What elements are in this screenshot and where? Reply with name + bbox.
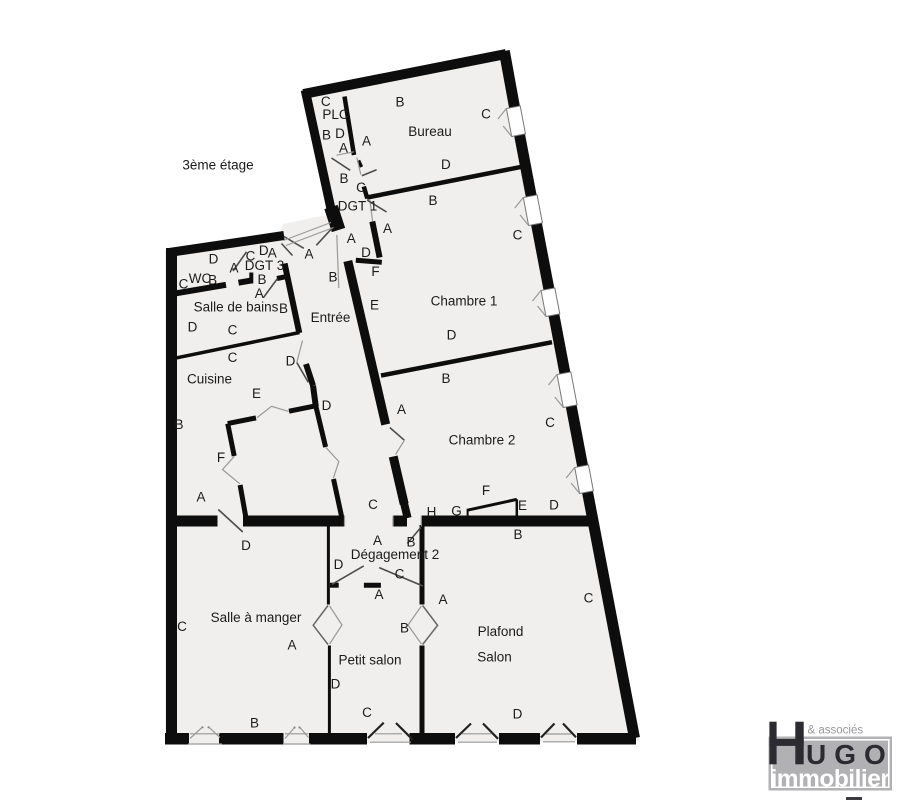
svg-text:C: C [179, 277, 189, 292]
svg-text:F: F [482, 483, 490, 498]
svg-text:Salon: Salon [477, 650, 512, 665]
svg-text:D: D [322, 398, 332, 413]
svg-text:B: B [513, 527, 522, 542]
svg-text:D: D [335, 126, 345, 141]
svg-text:D: D [188, 320, 198, 335]
svg-text:A: A [438, 592, 447, 607]
svg-text:C: C [228, 350, 238, 365]
svg-text:DGT 3: DGT 3 [245, 258, 285, 273]
svg-text:C: C [368, 497, 378, 512]
svg-text:G: G [451, 504, 462, 519]
svg-text:D: D [286, 354, 296, 369]
svg-text:B: B [174, 417, 183, 432]
svg-text:A: A [397, 402, 406, 417]
svg-text:immobilier: immobilier [771, 766, 891, 793]
svg-text:B: B [322, 128, 331, 143]
svg-text:A: A [373, 533, 382, 548]
svg-text:C: C [356, 180, 366, 195]
svg-text:A: A [196, 490, 205, 505]
svg-text:C: C [481, 107, 491, 122]
svg-text:C: C [545, 415, 555, 430]
svg-text:A: A [339, 141, 348, 156]
svg-text:Bureau: Bureau [408, 124, 452, 139]
svg-text:Cuisine: Cuisine [187, 372, 232, 387]
svg-text:B: B [395, 95, 404, 110]
svg-text:3ème étage: 3ème étage [182, 158, 253, 173]
svg-text:Salle à manger: Salle à manger [211, 610, 302, 625]
svg-text:B: B [400, 621, 409, 636]
svg-text:A: A [304, 247, 313, 262]
svg-text:Entrée: Entrée [311, 310, 351, 325]
svg-text:B: B [257, 272, 266, 287]
svg-text:A: A [374, 587, 383, 602]
svg-text:Dégagement 2: Dégagement 2 [351, 547, 440, 562]
svg-text:Chambre 2: Chambre 2 [449, 433, 516, 448]
svg-text:Petit salon: Petit salon [338, 653, 401, 668]
svg-text:C: C [395, 567, 405, 582]
svg-text:A: A [229, 261, 238, 276]
svg-text:D: D [334, 557, 344, 572]
svg-text:F: F [371, 264, 379, 279]
svg-text:Chambre 1: Chambre 1 [431, 294, 498, 309]
svg-text:B: B [428, 193, 437, 208]
svg-text:D: D [513, 707, 523, 722]
svg-text:A: A [287, 638, 296, 653]
svg-text:E: E [252, 386, 261, 401]
svg-text:D: D [549, 498, 559, 513]
svg-text:C: C [362, 705, 372, 720]
svg-text:E: E [518, 498, 527, 513]
svg-text:D: D [209, 252, 219, 267]
svg-text:H: H [427, 505, 437, 520]
svg-text:A: A [383, 221, 392, 236]
svg-text:PLC: PLC [322, 107, 349, 122]
svg-text:Plafond: Plafond [478, 624, 524, 639]
svg-text:D: D [441, 157, 451, 172]
svg-text:D: D [447, 328, 457, 343]
svg-text:D: D [331, 677, 341, 692]
svg-text:A: A [347, 231, 356, 246]
svg-text:DGT 1: DGT 1 [338, 199, 378, 214]
svg-text:B: B [250, 716, 259, 731]
svg-text:Salle de bains: Salle de bains [194, 300, 279, 315]
svg-text:E: E [370, 298, 379, 313]
svg-text:C: C [513, 228, 523, 243]
svg-text:D: D [361, 245, 371, 260]
svg-text:C: C [177, 619, 187, 634]
svg-text:D: D [241, 538, 251, 553]
svg-text:B: B [441, 371, 450, 386]
svg-text:C: C [584, 591, 594, 606]
svg-text:C: C [228, 323, 238, 338]
svg-text:F: F [217, 450, 225, 465]
svg-text:B: B [208, 273, 217, 288]
svg-text:A: A [362, 134, 371, 149]
svg-text:B: B [328, 270, 337, 285]
svg-text:& associés: & associés [808, 725, 864, 737]
svg-text:B: B [339, 171, 348, 186]
svg-text:B: B [279, 301, 288, 316]
